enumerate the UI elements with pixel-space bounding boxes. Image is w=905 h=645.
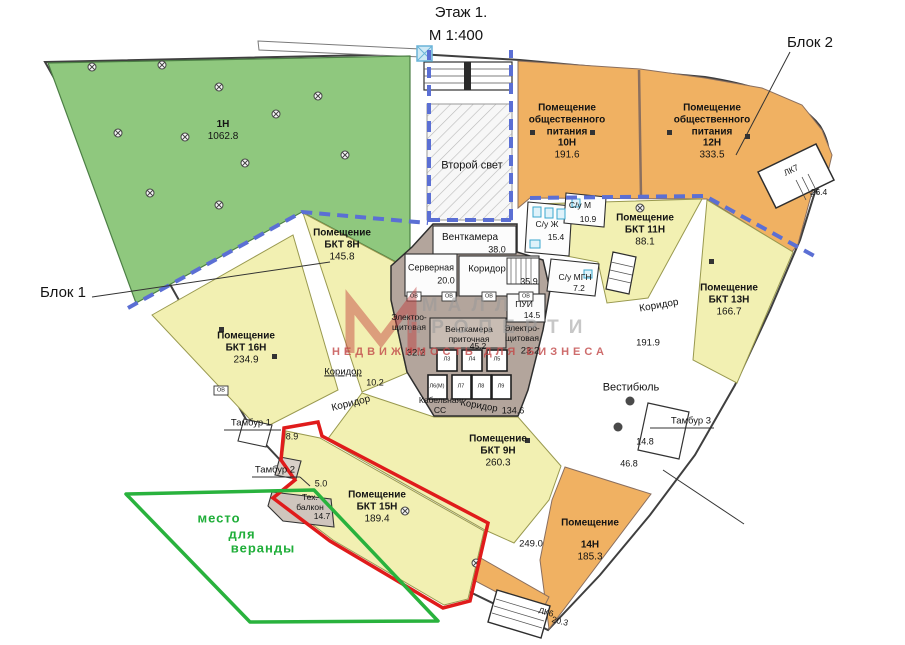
tech-balkon-label: Тех.балкон [296, 492, 324, 512]
block2-label: Блок 2 [787, 34, 833, 52]
plan-title-floor: Этаж 1. [435, 4, 488, 22]
veranda-note-1: место [197, 510, 240, 525]
tech-balkon-area: 14.7 [314, 511, 331, 521]
tambur2-area: 5.0 [315, 479, 328, 490]
stair-lk7-area: 26.4 [811, 187, 828, 197]
top-balcony [258, 41, 421, 57]
room-14n-label: Помещение 14Н185.3 [561, 517, 619, 562]
atrium-label: Второй свет [441, 160, 502, 173]
room-bkt13n-label: ПомещениеБКТ 13Н 166.7 [700, 282, 758, 317]
elevator-l9: Л9 [498, 384, 505, 390]
ventkamera-label: Венткамера [442, 232, 498, 244]
watermark-line1: МАЛЛ [422, 295, 518, 317]
koridor-right-area: 191.9 [636, 337, 660, 348]
koridor-core-area: 35.9 [520, 277, 538, 288]
ov-marker: ОВ [410, 294, 418, 300]
plan-title-scale: М 1:400 [429, 27, 483, 45]
ov-marker: ОВ [217, 388, 225, 394]
watermark-line3: НЕДВИЖИМОСТЬ ДЛЯ БИЗНЕСА [332, 346, 608, 358]
koridor-core-label: Коридор [468, 263, 506, 274]
elevator-l7: Л7 [458, 384, 465, 390]
vestibul-label: Вестибюль [603, 382, 660, 395]
su-m-area: 10.9 [580, 214, 597, 224]
room-10n-label: Помещениеобщественного питания10Н 191.6 [529, 103, 606, 162]
elevator-l6m: Л6(М) [430, 384, 445, 390]
su-zh-area: 15.4 [548, 232, 565, 242]
column [614, 423, 623, 432]
block1-label: Блок 1 [40, 284, 86, 302]
su-m-label: С/у М [569, 200, 591, 210]
area-46-8: 46.8 [620, 459, 638, 470]
column [626, 397, 635, 406]
room-bkt15n-label: ПомещениеБКТ 15Н 189.4 [348, 489, 406, 524]
koridor-left-label: Коридор [324, 366, 362, 377]
room-bkt16n-label: ПомещениеБКТ 16Н 234.9 [217, 330, 275, 365]
koridor-lift-area: 134.6 [502, 406, 525, 417]
room-1n-label: 1Н1062.8 [208, 119, 239, 143]
floor-plan: Этаж 1. М 1:400 Блок 2 Блок 1 1Н1062.8 П… [0, 0, 905, 645]
su-mgn-label: С/у МГН [559, 272, 592, 282]
su-zh-label: С/у Ж [536, 219, 559, 229]
tambur1-area: 8.9 [286, 432, 299, 443]
watermark-line2: ПРОПЕРТИ [408, 317, 593, 339]
elevator-l3: Л3 [444, 357, 451, 363]
cable-room-label: КабельнаяСС [419, 395, 461, 415]
room-bkt9n-label: ПомещениеБКТ 9Н 260.3 [469, 433, 527, 468]
servernaya-label: Серверная [408, 263, 454, 274]
servernaya-area: 20.0 [437, 276, 455, 287]
room-12n-label: Помещениеобщественного питания12Н 333.5 [674, 103, 751, 162]
elevator-l5: Л5 [494, 357, 501, 363]
elevator-l4: Л4 [469, 357, 476, 363]
room-bkt11n-label: ПомещениеБКТ 11Н 88.1 [616, 212, 674, 247]
su-mgn-area: 7.2 [573, 283, 585, 293]
tambur1-label: Тамбур 1 [231, 417, 271, 428]
room-bkt8n-label: ПомещениеБКТ 8Н 145.8 [313, 227, 371, 262]
elevator-l8: Л8 [478, 384, 485, 390]
area-14-8: 14.8 [636, 437, 654, 448]
ventkamera-area: 38.0 [488, 245, 506, 256]
area-249: 249.0 [519, 538, 543, 549]
ov-marker: ОВ [522, 294, 530, 300]
tambur2-label: Тамбур 2 [255, 464, 295, 475]
koridor-left-area: 10.2 [366, 378, 384, 389]
tambur3-shape [638, 403, 689, 459]
tambur3-label: Тамбур 3 [671, 415, 711, 426]
veranda-note-3: веранды [231, 540, 295, 555]
